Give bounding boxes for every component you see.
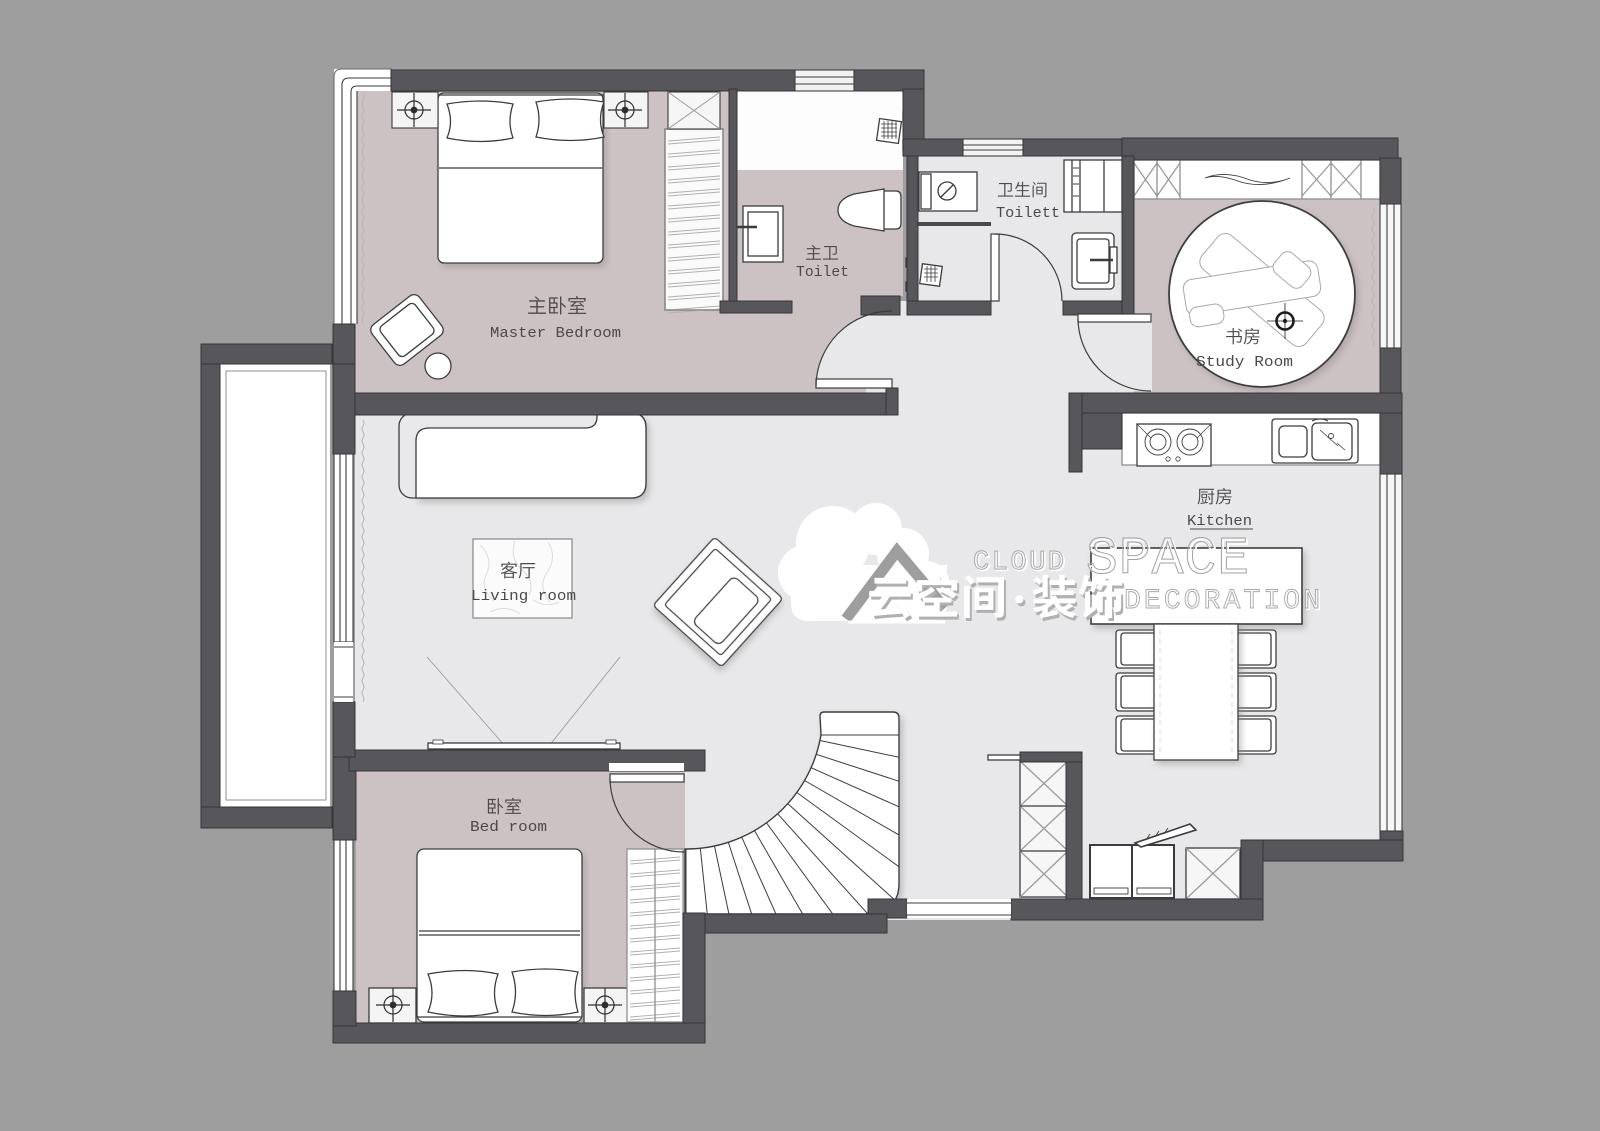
svg-text:Study Room: Study Room [1196,354,1293,371]
svg-text:Living room: Living room [471,588,576,605]
svg-text:Master Bedroom: Master Bedroom [490,325,621,342]
svg-text:Toilett: Toilett [996,205,1060,222]
svg-text:SPACE: SPACE [1086,529,1249,589]
svg-text:Toilet: Toilet [796,264,849,281]
svg-text:Kitchen: Kitchen [1187,513,1252,530]
svg-text:CLOUD: CLOUD [973,548,1064,578]
svg-text:Bed room: Bed room [470,819,547,836]
